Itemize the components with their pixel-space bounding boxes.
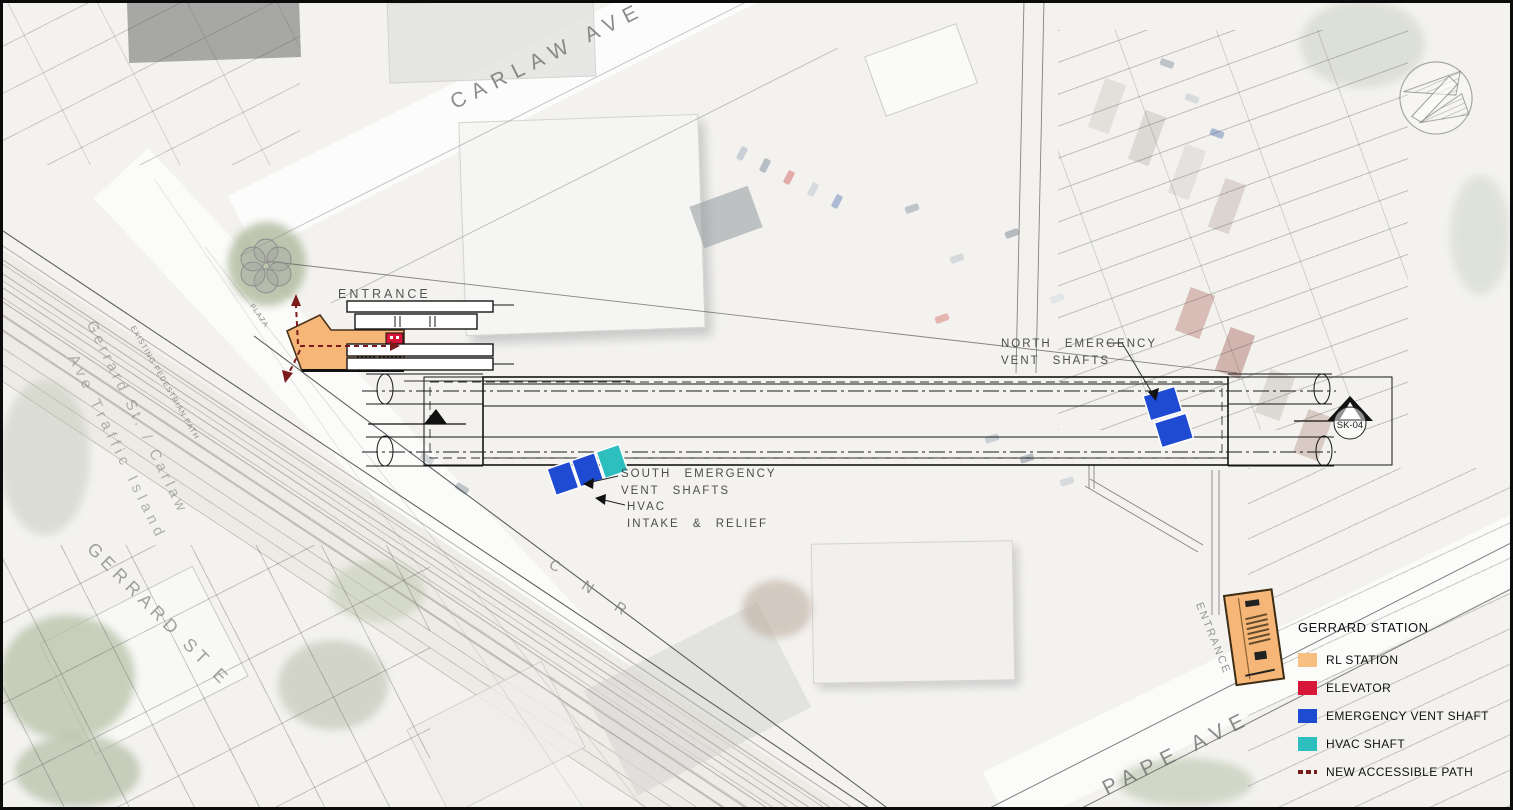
hvac-label: HVAC INTAKE & RELIEF [627,499,768,533]
site-plan-linework [0,0,1513,810]
legend-item-rl-station: RL STATION [1298,646,1513,674]
legend-title: GERRARD STATION [1298,620,1513,635]
main-entrance-label: ENTRANCE [338,286,431,303]
south-vent-label-line2: VENT SHAFTS [621,483,777,500]
elevator-box [386,333,403,344]
north-arrow-icon [1392,54,1479,141]
elevator-swatch [1298,681,1317,695]
north-vent-shafts [1143,385,1194,448]
tree-symbol [241,239,291,293]
section-flag-marker [368,409,466,424]
section-marker-label: SK-04 [1332,417,1368,434]
south-vent-label-line1: SOUTH EMERGENCY [621,466,777,483]
legend-item-label: EMERGENCY VENT SHAFT [1326,709,1489,723]
track-centerlines [362,391,1336,452]
legend: GERRARD STATION RL STATION ELEVATOR EMER… [1298,620,1513,786]
legend-item-new-accessible-path: NEW ACCESSIBLE PATH [1298,758,1513,786]
north-vent-label-line1: NORTH EMERGENCY [1001,336,1157,353]
south-vent-label: SOUTH EMERGENCY VENT SHAFTS [621,466,777,500]
hvac-label-line1: HVAC [627,499,768,516]
legend-item-label: RL STATION [1326,653,1398,667]
accessible-path-swatch [1298,770,1317,774]
legend-item-label: ELEVATOR [1326,681,1391,695]
hvac-label-line2: INTAKE & RELIEF [627,516,768,533]
emergency-vent-swatch [1298,709,1317,723]
legend-item-hvac-shaft: HVAC SHAFT [1298,730,1513,758]
north-vent-label: NORTH EMERGENCY VENT SHAFTS [1001,336,1157,370]
north-vent-label-line2: VENT SHAFTS [1001,353,1157,370]
legend-item-emergency-vent-shaft: EMERGENCY VENT SHAFT [1298,702,1513,730]
hvac-swatch [1298,737,1317,751]
site-plan-map[interactable]: CARLAW AVE PAPE AVE GERRARD ST E C N R G… [0,0,1513,810]
legend-item-label: HVAC SHAFT [1326,737,1405,751]
legend-item-elevator: ELEVATOR [1298,674,1513,702]
rl-station-swatch [1298,653,1317,667]
legend-item-label: NEW ACCESSIBLE PATH [1326,765,1473,779]
